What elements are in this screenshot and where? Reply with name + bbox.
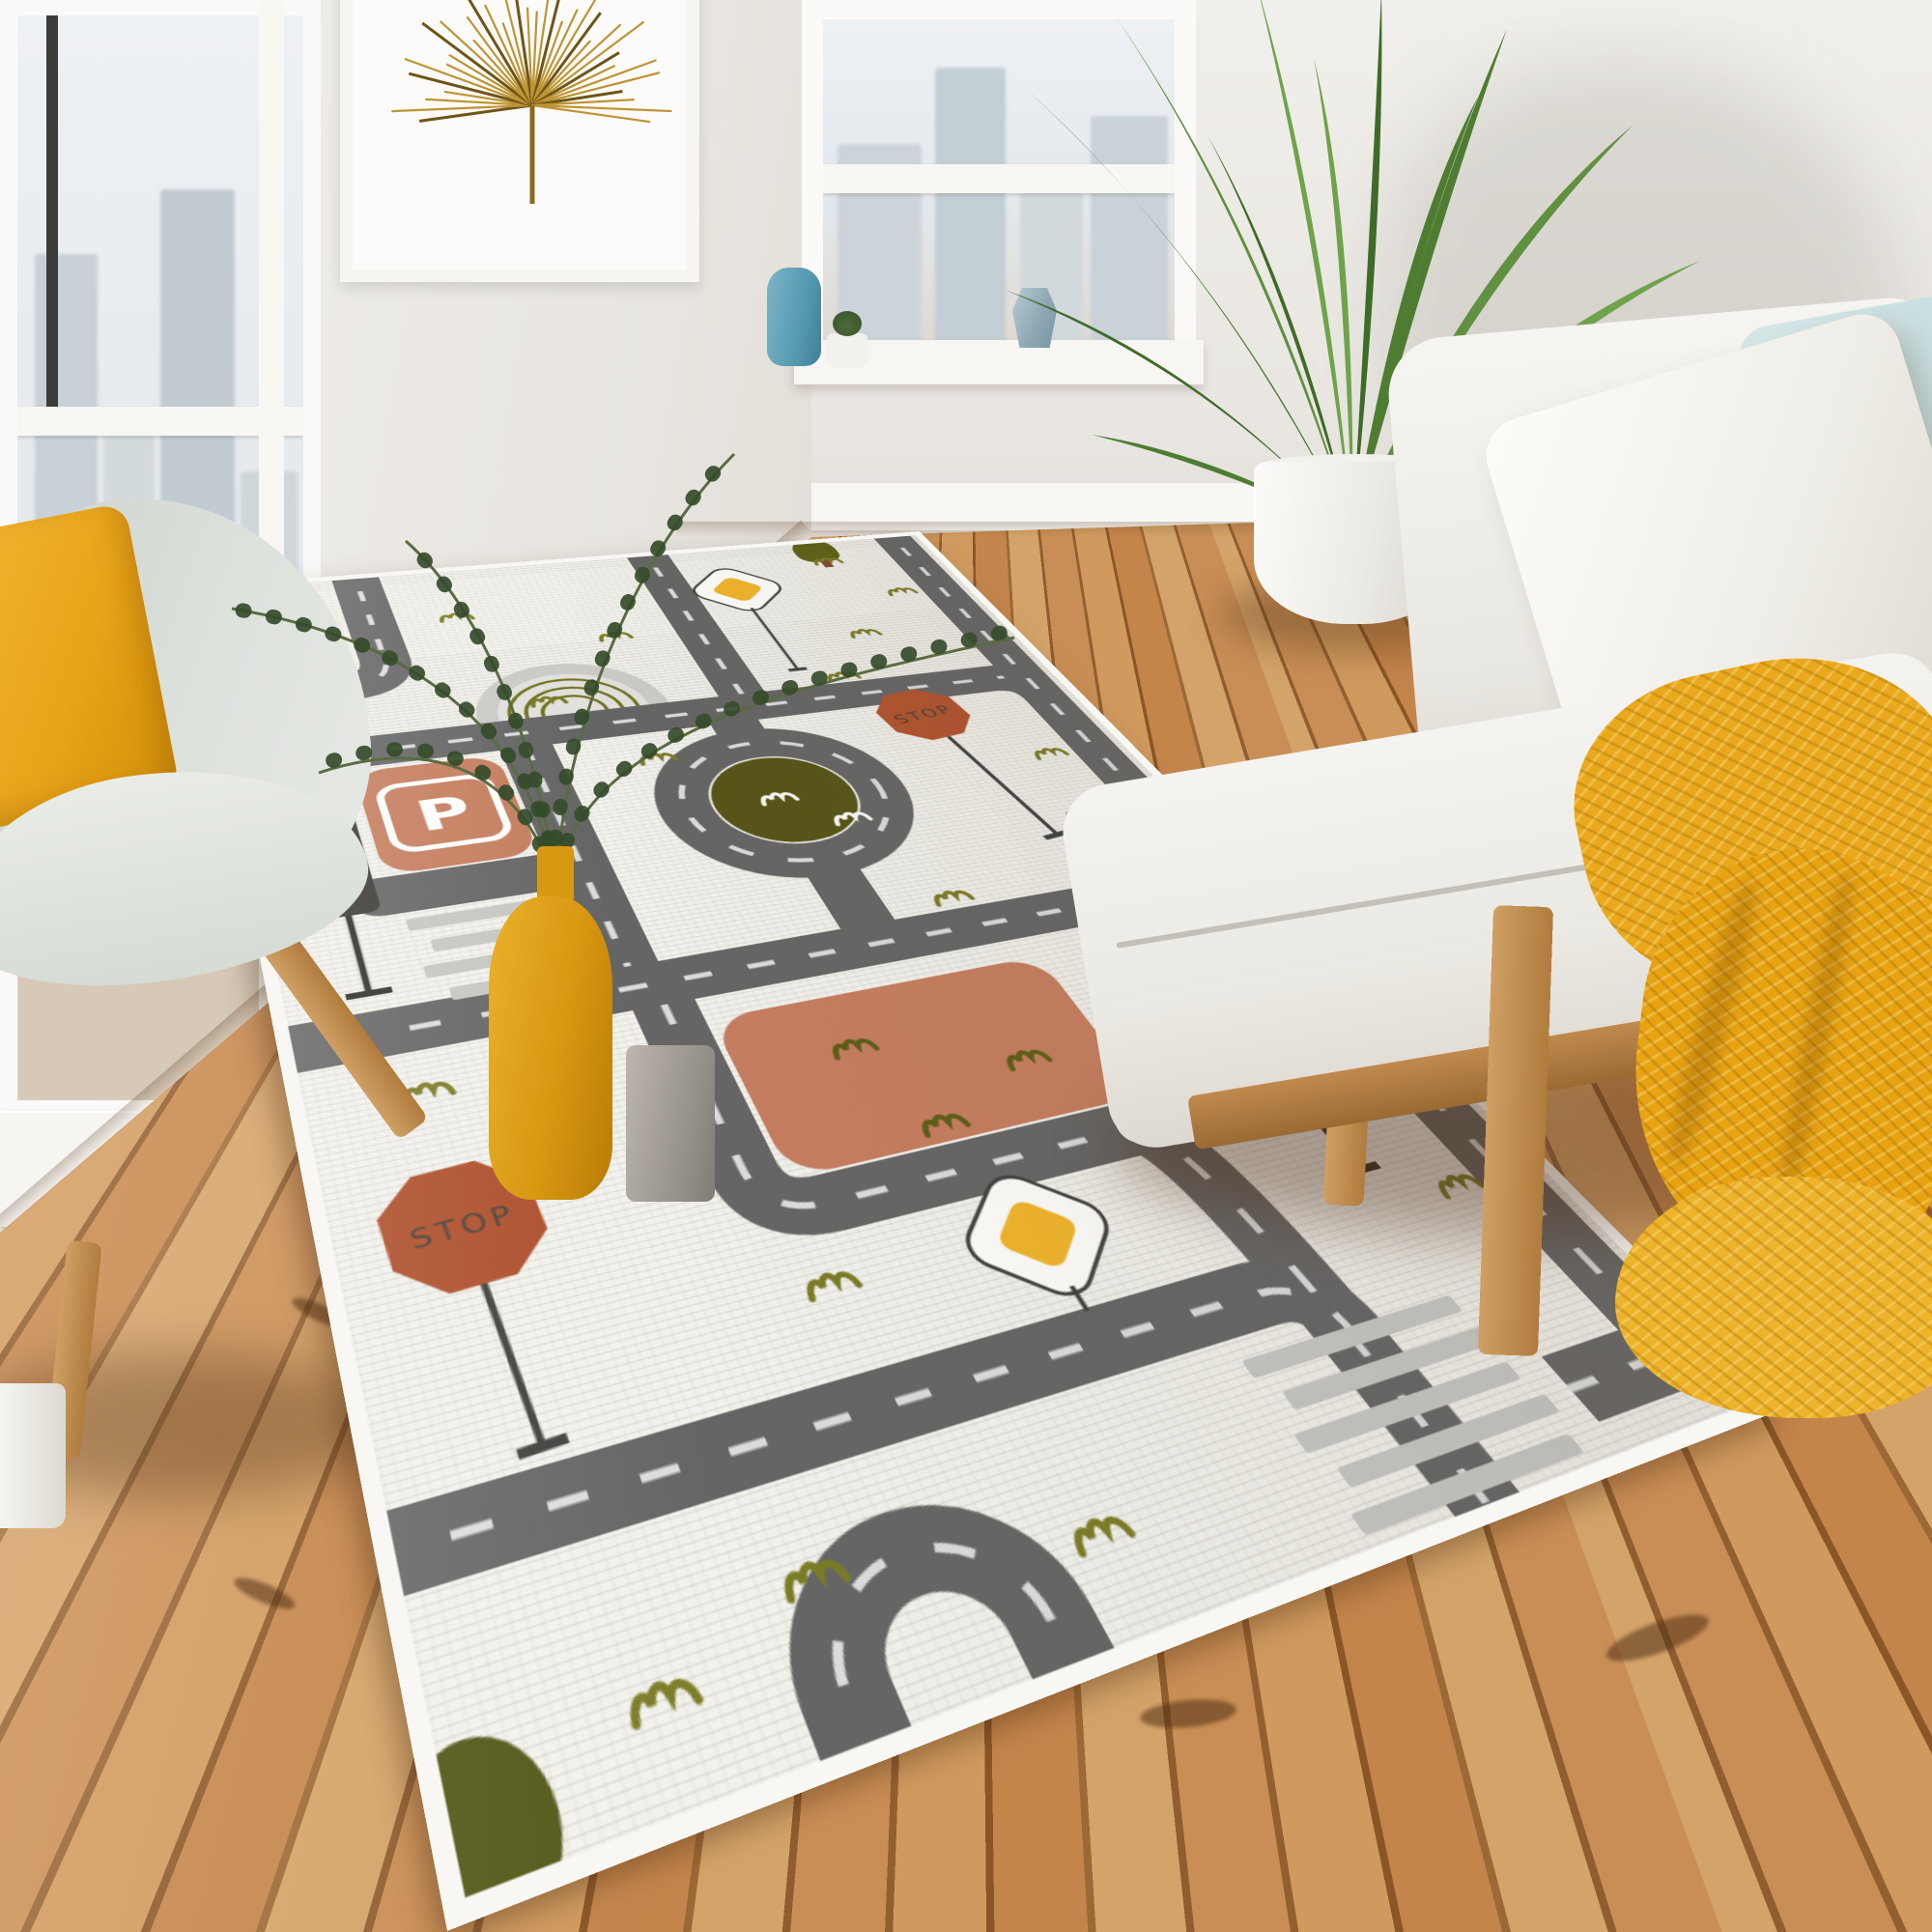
leaf-row	[319, 750, 551, 874]
floor-vase	[0, 1383, 66, 1528]
gray-cup	[626, 1045, 715, 1202]
window-sash-dark	[46, 15, 58, 431]
throw-crease	[1773, 871, 1860, 1199]
gold-palm-leaf-art	[353, 0, 687, 270]
wall-art-frame	[340, 0, 699, 282]
branch-plant	[116, 319, 1072, 918]
palm-frond	[1256, 0, 1352, 531]
leaf-row	[232, 609, 555, 869]
wood-knot	[231, 1572, 298, 1614]
gold-leaf-fan	[391, 0, 671, 122]
stem	[555, 638, 1014, 884]
wood-knot	[1602, 1605, 1714, 1670]
plant-stems	[232, 454, 1014, 884]
living-room-scene: P	[0, 0, 1932, 1932]
wood-knot	[1139, 1695, 1237, 1731]
leaf-row	[558, 630, 1014, 871]
throw-crease	[1662, 878, 1765, 1166]
yellow-vase	[489, 896, 612, 1200]
